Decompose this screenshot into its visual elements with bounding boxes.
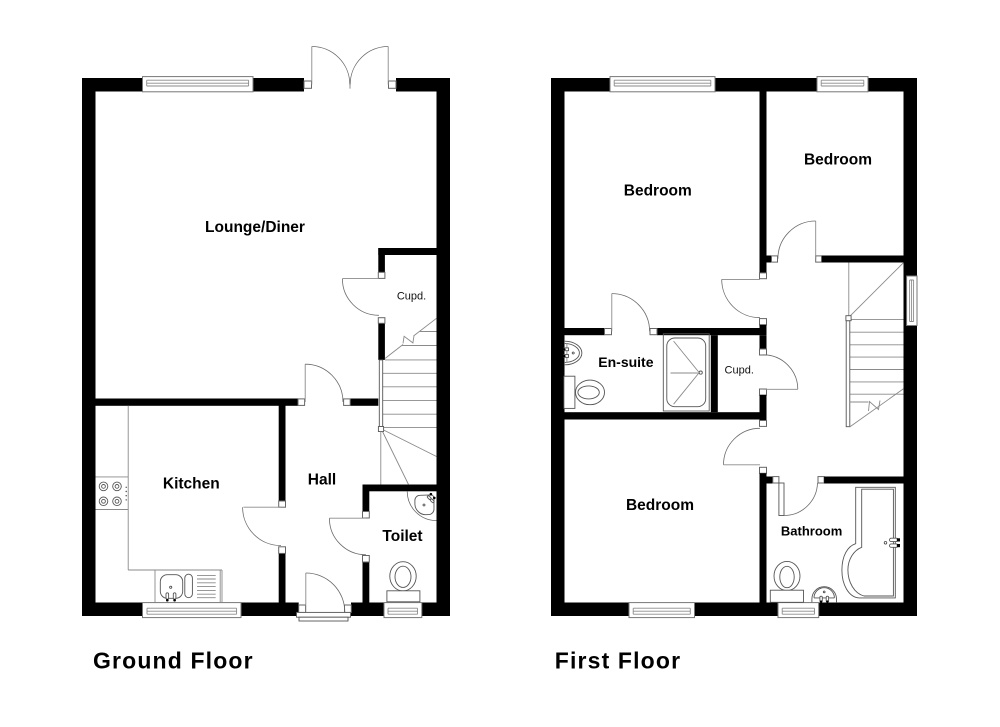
svg-text:Kitchen: Kitchen [163, 476, 220, 493]
svg-text:Lounge/Diner: Lounge/Diner [205, 219, 305, 236]
svg-text:Ground Floor: Ground Floor [93, 648, 254, 674]
svg-text:Bathroom: Bathroom [781, 524, 842, 539]
svg-text:First Floor: First Floor [555, 648, 681, 674]
svg-text:Cupd.: Cupd. [397, 291, 426, 303]
svg-text:Toilet: Toilet [382, 528, 422, 545]
svg-text:Hall: Hall [308, 472, 336, 489]
svg-text:Bedroom: Bedroom [624, 183, 692, 200]
svg-text:Bedroom: Bedroom [626, 497, 694, 514]
svg-text:Cupd.: Cupd. [725, 364, 754, 376]
svg-text:En-suite: En-suite [598, 354, 653, 370]
svg-text:Bedroom: Bedroom [804, 151, 872, 168]
